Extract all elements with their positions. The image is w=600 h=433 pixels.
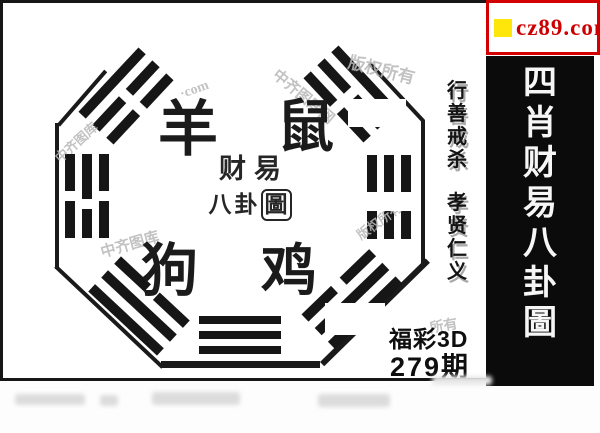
seal-line1: 财易 bbox=[200, 153, 300, 185]
zodiac-dog: 狗 bbox=[141, 243, 198, 300]
censor-patch bbox=[353, 192, 419, 211]
zodiac-rat: 鼠 bbox=[277, 99, 334, 156]
zodiac-sheep: 羊 bbox=[158, 100, 218, 160]
site-badge: cz89.com bbox=[486, 0, 600, 55]
trigram-line-segment bbox=[401, 155, 411, 192]
trigram-left bbox=[65, 154, 109, 238]
octagon-edge-right bbox=[421, 120, 425, 267]
seal-line2: 八卦圖 bbox=[200, 189, 300, 221]
trigram-line-segment bbox=[82, 209, 92, 238]
seal-char-tu: 圖 bbox=[261, 189, 292, 221]
zodiac-rooster: 鸡 bbox=[261, 244, 317, 300]
trigram-line-solid bbox=[199, 331, 281, 339]
trigram-line-solid bbox=[199, 346, 281, 354]
banner-title: 四肖财易八卦圖 bbox=[520, 64, 560, 344]
trigram-line-solid bbox=[199, 316, 281, 324]
trigram-line-segment bbox=[82, 154, 92, 199]
trigram-line-segment bbox=[99, 154, 109, 191]
censored-smudge bbox=[318, 394, 390, 407]
censored-smudge bbox=[100, 395, 118, 406]
center-seal: 财易 八卦圖 bbox=[200, 153, 300, 221]
censor-patch bbox=[348, 99, 406, 127]
title-banner: 四肖财易八卦圖 bbox=[486, 56, 594, 386]
bagua-lottery-image: 版权所有 中齐图库网 中齐图库 版权所有 ·com 中齐图库 所有 羊 鼠 狗 … bbox=[0, 0, 600, 433]
censor-patch bbox=[325, 303, 385, 335]
censored-smudge bbox=[432, 376, 492, 385]
trigram-line-broken bbox=[65, 154, 75, 238]
trigram-line-segment bbox=[99, 201, 109, 238]
octagon-edge-bottom bbox=[161, 361, 320, 368]
motto-group1: 行善戒杀 bbox=[444, 80, 470, 172]
trigram-line-broken bbox=[82, 154, 92, 238]
trigram-bottom bbox=[199, 316, 281, 354]
seal-char-gua: 卦 bbox=[235, 192, 261, 217]
trigram-line-segment bbox=[65, 201, 75, 238]
yellow-square-icon bbox=[494, 19, 512, 37]
trigram-line-segment bbox=[367, 155, 377, 192]
trigram-line-broken bbox=[99, 154, 109, 238]
seal-char-ba: 八 bbox=[209, 192, 235, 217]
site-name: cz89.com bbox=[516, 15, 600, 41]
censored-smudge bbox=[152, 392, 240, 405]
motto-group2: 孝贤仁义 bbox=[444, 192, 470, 284]
censored-smudge bbox=[15, 394, 85, 405]
